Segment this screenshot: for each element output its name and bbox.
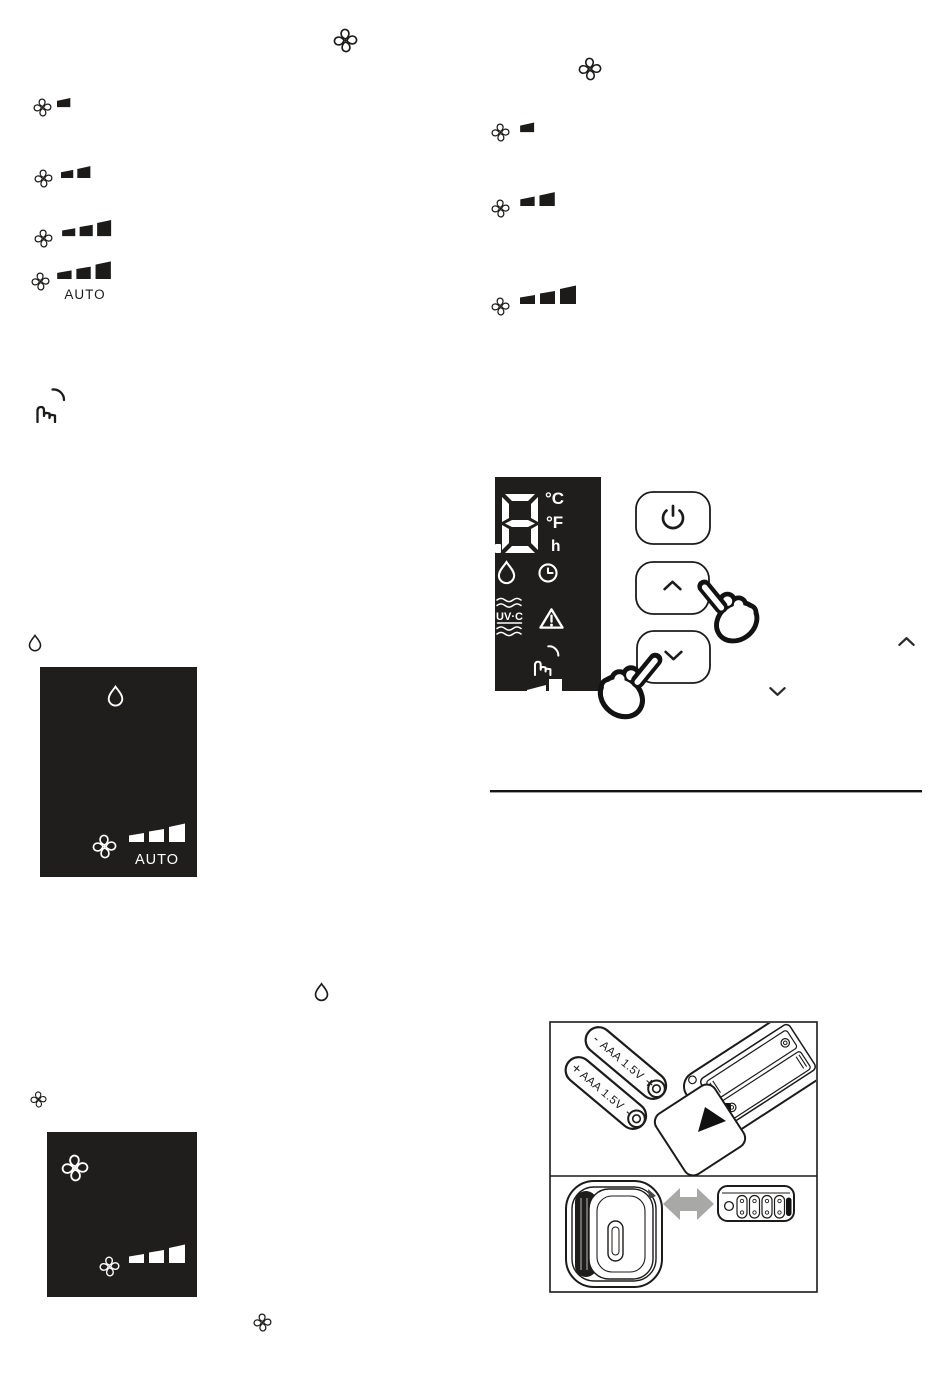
speed-bars-1-icon <box>57 98 70 107</box>
decimal-point <box>495 544 501 553</box>
fan-icon <box>492 124 509 141</box>
speed-bars-3-icon <box>520 286 576 305</box>
appliance-top-view <box>566 1181 662 1287</box>
pointing-hand-up-icon <box>704 586 764 648</box>
fan-speed-legend-right <box>492 58 601 315</box>
fan-speed-row-3 <box>35 220 111 247</box>
fan-speed-row-1 <box>34 98 70 116</box>
manual-page-canvas: AUTO <box>0 0 950 1383</box>
display-panel <box>495 477 601 691</box>
battery-installation-figure: - AAA 1.5V + + AAA 1.5V - <box>550 997 849 1292</box>
caret-down-icon <box>770 688 784 695</box>
display-panel-figure: °C °F h UV·C <box>495 477 764 725</box>
fan-icon <box>35 170 52 187</box>
fan-speed-row-auto: AUTO <box>32 261 111 302</box>
fan-icon <box>492 298 509 315</box>
fan-speed-row-2 <box>492 192 555 217</box>
water-drop-icon <box>29 635 40 650</box>
manual-page: AUTO <box>0 0 950 1383</box>
water-drop-icon <box>316 984 328 1001</box>
touch-hand-icon <box>38 389 65 422</box>
power-button <box>636 492 710 544</box>
auto-label: AUTO <box>135 852 179 868</box>
fan-icon <box>579 58 600 79</box>
remote-ir-end <box>786 1198 792 1217</box>
fan-mode-panel-figure <box>47 1132 197 1297</box>
fan-speed-legend-left: AUTO <box>32 29 356 302</box>
speed-bars-2-icon <box>61 166 90 178</box>
fan-icon <box>32 273 49 290</box>
speed-bars-3-icon <box>57 261 111 279</box>
caret-up-icon <box>899 638 913 645</box>
fan-icon <box>334 29 356 51</box>
fan-icon <box>31 1092 46 1107</box>
remote-control <box>718 1186 794 1221</box>
auto-label: AUTO <box>64 287 105 302</box>
auto-mode-panel <box>40 667 197 877</box>
auto-mode-panel-figure: AUTO <box>40 667 197 877</box>
pointing-hand-down-icon <box>592 660 655 725</box>
unit-fahrenheit: °F <box>546 513 563 532</box>
fan-icon <box>254 1314 271 1331</box>
fan-icon <box>34 99 51 116</box>
fan-icon <box>492 200 509 217</box>
unit-celsius: °C <box>545 489 564 508</box>
speed-bars-2-icon <box>520 192 555 206</box>
fan-speed-row-1 <box>492 123 534 141</box>
speed-bars-3-icon <box>62 220 111 236</box>
section-divider <box>490 790 922 792</box>
fan-mode-panel <box>47 1132 197 1297</box>
unit-hours: h <box>551 538 560 555</box>
fan-icon <box>35 230 52 247</box>
speed-bars-1-icon <box>520 123 534 133</box>
uvc-label: UV·C <box>496 611 523 623</box>
fan-speed-row-2 <box>35 166 90 187</box>
fan-speed-row-3 <box>492 286 576 315</box>
